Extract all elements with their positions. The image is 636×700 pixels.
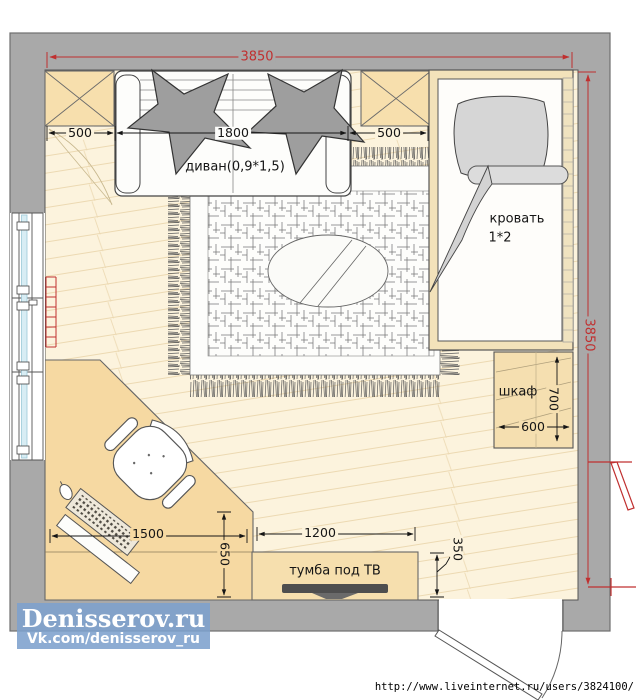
wardrobe-label: шкаф bbox=[497, 386, 540, 399]
tv bbox=[282, 584, 388, 593]
cabinet-left bbox=[45, 71, 114, 126]
bed-side-ladder bbox=[563, 78, 573, 342]
carpet-oval bbox=[268, 235, 388, 307]
bed bbox=[429, 70, 573, 350]
dim-sofa-left-offset: 500 bbox=[66, 127, 94, 140]
dim-wardrobe-width: 600 bbox=[519, 421, 547, 434]
floor-plan-image: 3850 3850 500 1800 500 диван(0,9*1,5) кр… bbox=[0, 0, 636, 700]
dim-sofa-right-offset: 500 bbox=[375, 127, 403, 140]
bed-label: кровать bbox=[488, 213, 547, 226]
source-url: http://www.liveinternet.ru/users/3824100… bbox=[375, 681, 634, 693]
dim-sofa-length: 1800 bbox=[215, 127, 251, 140]
dim-desk-depth: 650 bbox=[218, 540, 231, 568]
dim-total-width: 3850 bbox=[238, 51, 275, 64]
cabinet-right bbox=[361, 71, 431, 126]
dim-tv-stand-depth: 350 bbox=[451, 535, 464, 563]
dim-desk-length: 1500 bbox=[130, 528, 166, 541]
floor-plan-drawing bbox=[0, 0, 636, 700]
sofa-label: диван(0,9*1,5) bbox=[183, 161, 287, 174]
window bbox=[10, 213, 45, 460]
watermark-subtitle: Vk.com/denisserov_ru bbox=[17, 632, 210, 646]
tv-stand-label: тумба под ТВ bbox=[287, 565, 383, 578]
dim-wardrobe-depth: 700 bbox=[547, 385, 560, 413]
watermark: Denisserov.ru Vk.com/denisserov_ru bbox=[17, 603, 210, 649]
watermark-title: Denisserov.ru bbox=[17, 607, 210, 631]
bed-size-label: 1*2 bbox=[486, 232, 513, 245]
dim-tv-stand-length: 1200 bbox=[302, 527, 338, 540]
dim-total-height: 3850 bbox=[583, 316, 596, 353]
